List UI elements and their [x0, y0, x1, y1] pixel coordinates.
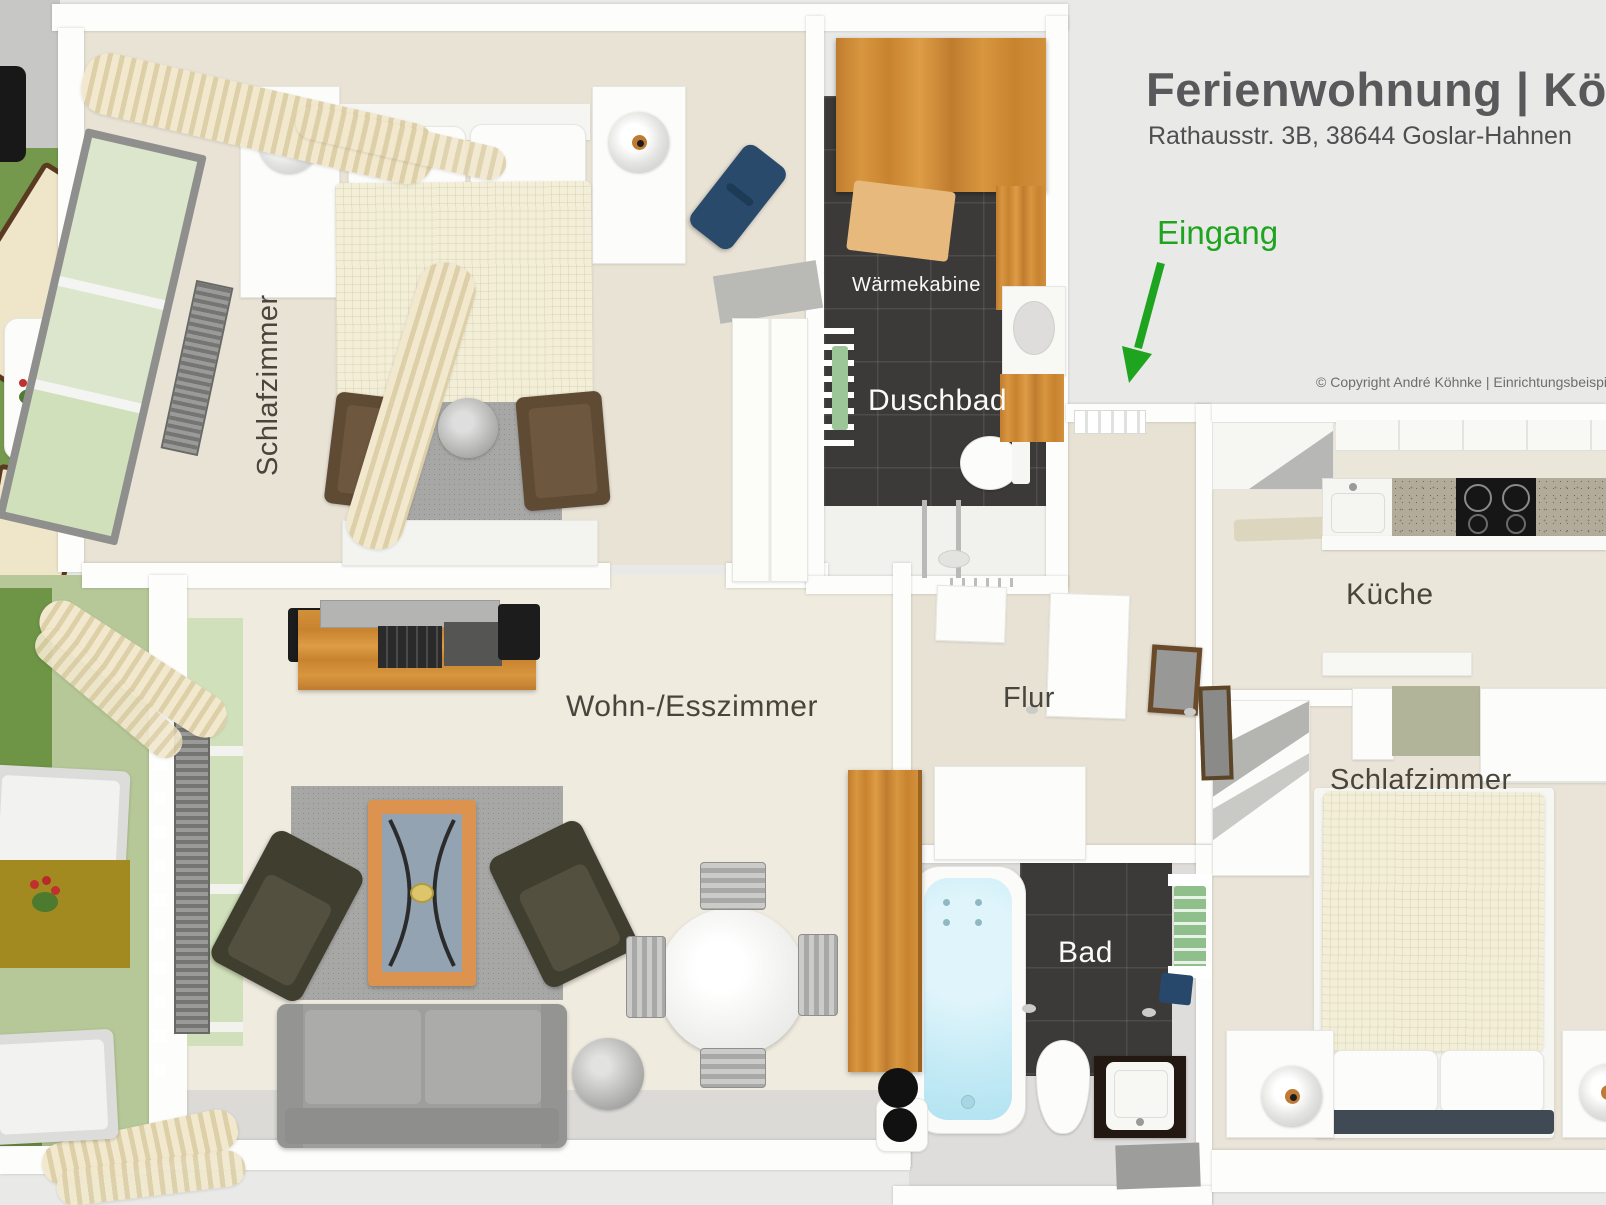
cutting-board	[1234, 516, 1337, 542]
towel-green	[832, 346, 848, 430]
wardrobe	[732, 318, 808, 582]
granite-counter	[1536, 478, 1606, 536]
bathtub	[912, 866, 1026, 1134]
dining-chair	[700, 1048, 766, 1088]
speaker-icon	[498, 604, 540, 660]
sun-lounger	[0, 1029, 119, 1146]
wall	[1212, 1150, 1606, 1192]
kitchen-table	[1322, 652, 1472, 676]
mustard-rug	[0, 860, 130, 968]
towel-rail	[1168, 874, 1212, 886]
coffee-table	[368, 800, 476, 986]
shower-handle-icon	[922, 500, 927, 578]
cooktop	[1456, 478, 1536, 536]
bath-mat	[1115, 1143, 1200, 1190]
bedside-lamp-icon	[609, 112, 669, 172]
room-label-bedroom-right: Schlafzimmer	[1330, 764, 1512, 797]
door-stop	[1142, 1008, 1156, 1017]
granite-counter	[1392, 478, 1456, 536]
room-label-heat-cabin: Wärmekabine	[852, 274, 981, 297]
floor-lamp-icon	[572, 1038, 644, 1110]
dining-table	[658, 908, 806, 1056]
door-stop	[1184, 708, 1196, 716]
toilet-tank	[1012, 440, 1030, 484]
table-iron-decor-icon	[382, 814, 462, 972]
sauna	[836, 38, 1046, 192]
stool	[878, 1068, 918, 1108]
window-sill	[1352, 688, 1394, 760]
bed-blanket	[1321, 791, 1545, 1053]
kitchen-upper-cabinets	[1336, 420, 1606, 451]
picture-frame-icon	[1148, 644, 1203, 715]
armchair	[515, 390, 611, 511]
counter-front	[1322, 536, 1606, 550]
wall	[52, 4, 1068, 31]
vanity-cabinet	[1000, 374, 1064, 442]
kitchen-corner-unit	[1212, 422, 1334, 490]
page-subtitle: Rathausstr. 3B, 38644 Goslar-Hahnen	[1148, 122, 1572, 151]
page-title: Ferienwohnung | Kö	[1146, 62, 1606, 117]
room-label-bedroom-top: Schlafzimmer	[252, 276, 285, 476]
av-box	[444, 622, 502, 666]
room-label-hallway: Flur	[1003, 682, 1055, 715]
room-label-bath: Bad	[1058, 936, 1113, 970]
av-components	[378, 626, 442, 668]
wall	[893, 1186, 1212, 1205]
bed-headboard	[1310, 1110, 1554, 1134]
shower-drain	[938, 550, 970, 568]
picture-frame-icon	[1198, 685, 1233, 780]
room-label-living-dining: Wohn-/Esszimmer	[566, 690, 818, 724]
kitchen-sink	[1322, 478, 1394, 540]
bedside-lamp-icon	[1262, 1066, 1322, 1126]
towel-navy	[1159, 972, 1194, 1005]
copyright-text: © Copyright André Köhnke | Einrichtungsb…	[1316, 374, 1606, 390]
entrance-arrow-icon	[1108, 255, 1180, 390]
wall	[1196, 404, 1212, 864]
grill-icon	[0, 66, 26, 162]
floorplan-canvas: Schlafzimmer Wärmekabine Duschbad Flur K…	[0, 0, 1606, 1205]
dining-chair	[700, 862, 766, 910]
hallway-mat	[935, 585, 1007, 643]
door-stop	[1022, 1004, 1036, 1013]
towel-green	[1174, 886, 1206, 970]
sage-rug	[1392, 686, 1480, 756]
room-label-kitchen: Küche	[1346, 578, 1434, 612]
dining-chair	[798, 934, 838, 1016]
vanity-counter	[1002, 286, 1066, 376]
tall-cabinet	[848, 770, 922, 1072]
toilet	[960, 436, 1020, 490]
stool	[883, 1108, 917, 1142]
pillow	[1332, 1050, 1438, 1114]
shower-floor	[824, 506, 1046, 578]
entrance-label: Eingang	[1157, 214, 1278, 252]
dining-chair	[626, 936, 666, 1018]
vanity-cabinet	[1094, 1056, 1186, 1138]
tulips-icon	[28, 876, 62, 914]
sauna-bench	[846, 180, 956, 262]
entry-door	[1074, 410, 1146, 434]
hallway-sideboard	[934, 766, 1086, 860]
radiator	[174, 710, 210, 1034]
side-table	[438, 398, 498, 458]
room-label-shower-bath: Duschbad	[868, 384, 1007, 418]
open-door-leaf	[1046, 593, 1130, 720]
sofa	[277, 1004, 567, 1148]
pillow	[1440, 1050, 1544, 1114]
